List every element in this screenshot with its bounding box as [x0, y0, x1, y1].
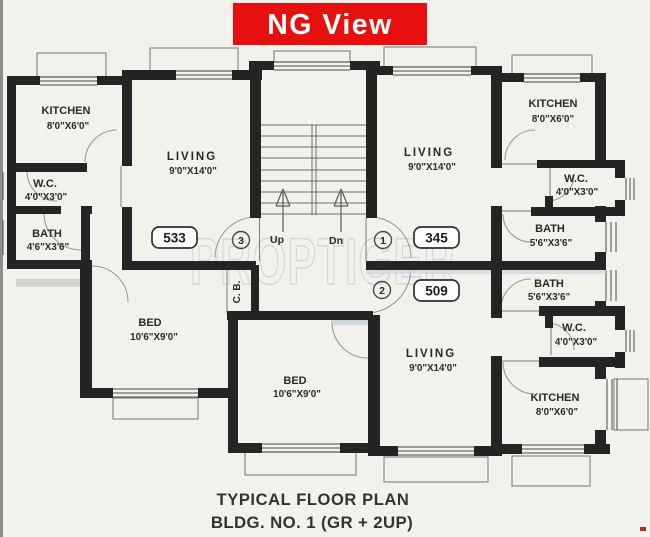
- svg-text:KITCHEN: KITCHEN: [42, 105, 91, 117]
- svg-text:LIVING: LIVING: [404, 147, 454, 159]
- svg-text:BED: BED: [283, 375, 306, 387]
- svg-text:1: 1: [380, 235, 386, 247]
- svg-text:9'0"X14'0": 9'0"X14'0": [408, 162, 456, 173]
- svg-text:10'6"X9'0": 10'6"X9'0": [273, 389, 321, 400]
- svg-text:C. B.: C. B.: [232, 280, 243, 303]
- svg-text:8'0"X6'0": 8'0"X6'0": [532, 114, 574, 125]
- svg-text:W.C.: W.C.: [564, 173, 588, 185]
- svg-text:8'0"X6'0": 8'0"X6'0": [47, 121, 89, 132]
- svg-text:Dn: Dn: [329, 235, 343, 247]
- svg-text:4'0"X3'0": 4'0"X3'0": [25, 192, 67, 203]
- svg-text:8'0"X6'0": 8'0"X6'0": [536, 407, 578, 418]
- svg-text:Up: Up: [270, 234, 284, 246]
- svg-text:509: 509: [425, 284, 448, 299]
- svg-text:9'0"X14'0": 9'0"X14'0": [169, 166, 217, 177]
- svg-text:345: 345: [425, 231, 448, 246]
- svg-text:NG View: NG View: [267, 9, 393, 41]
- svg-text:10'6"X9'0": 10'6"X9'0": [130, 332, 178, 343]
- svg-text:5'6"X3'6": 5'6"X3'6": [528, 292, 570, 303]
- svg-text:5'6"X3'6": 5'6"X3'6": [530, 238, 572, 249]
- svg-text:4'0"X3'0": 4'0"X3'0": [555, 337, 597, 348]
- svg-text:3: 3: [238, 235, 244, 247]
- svg-text:4'6"X3'6": 4'6"X3'6": [27, 242, 69, 253]
- svg-text:LIVING: LIVING: [406, 348, 456, 360]
- svg-text:TYPICAL FLOOR PLAN: TYPICAL FLOOR PLAN: [217, 491, 410, 509]
- svg-text:LIVING: LIVING: [167, 151, 217, 163]
- svg-text:2: 2: [379, 285, 385, 297]
- svg-text:BLDG. NO. 1 (GR + 2UP): BLDG. NO. 1 (GR + 2UP): [211, 513, 413, 532]
- svg-text:KITCHEN: KITCHEN: [529, 98, 578, 110]
- svg-text:533: 533: [163, 231, 186, 246]
- svg-text:4'0"X3'0": 4'0"X3'0": [556, 187, 598, 198]
- svg-text:KITCHEN: KITCHEN: [531, 392, 580, 404]
- svg-text:BED: BED: [138, 317, 161, 329]
- svg-text:BATH: BATH: [535, 223, 565, 235]
- svg-text:BATH: BATH: [32, 228, 62, 240]
- svg-text:BATH: BATH: [534, 278, 564, 290]
- svg-text:W.C.: W.C.: [33, 178, 57, 190]
- svg-text:W.C.: W.C.: [562, 322, 586, 334]
- svg-text:9'0"X14'0": 9'0"X14'0": [409, 363, 457, 374]
